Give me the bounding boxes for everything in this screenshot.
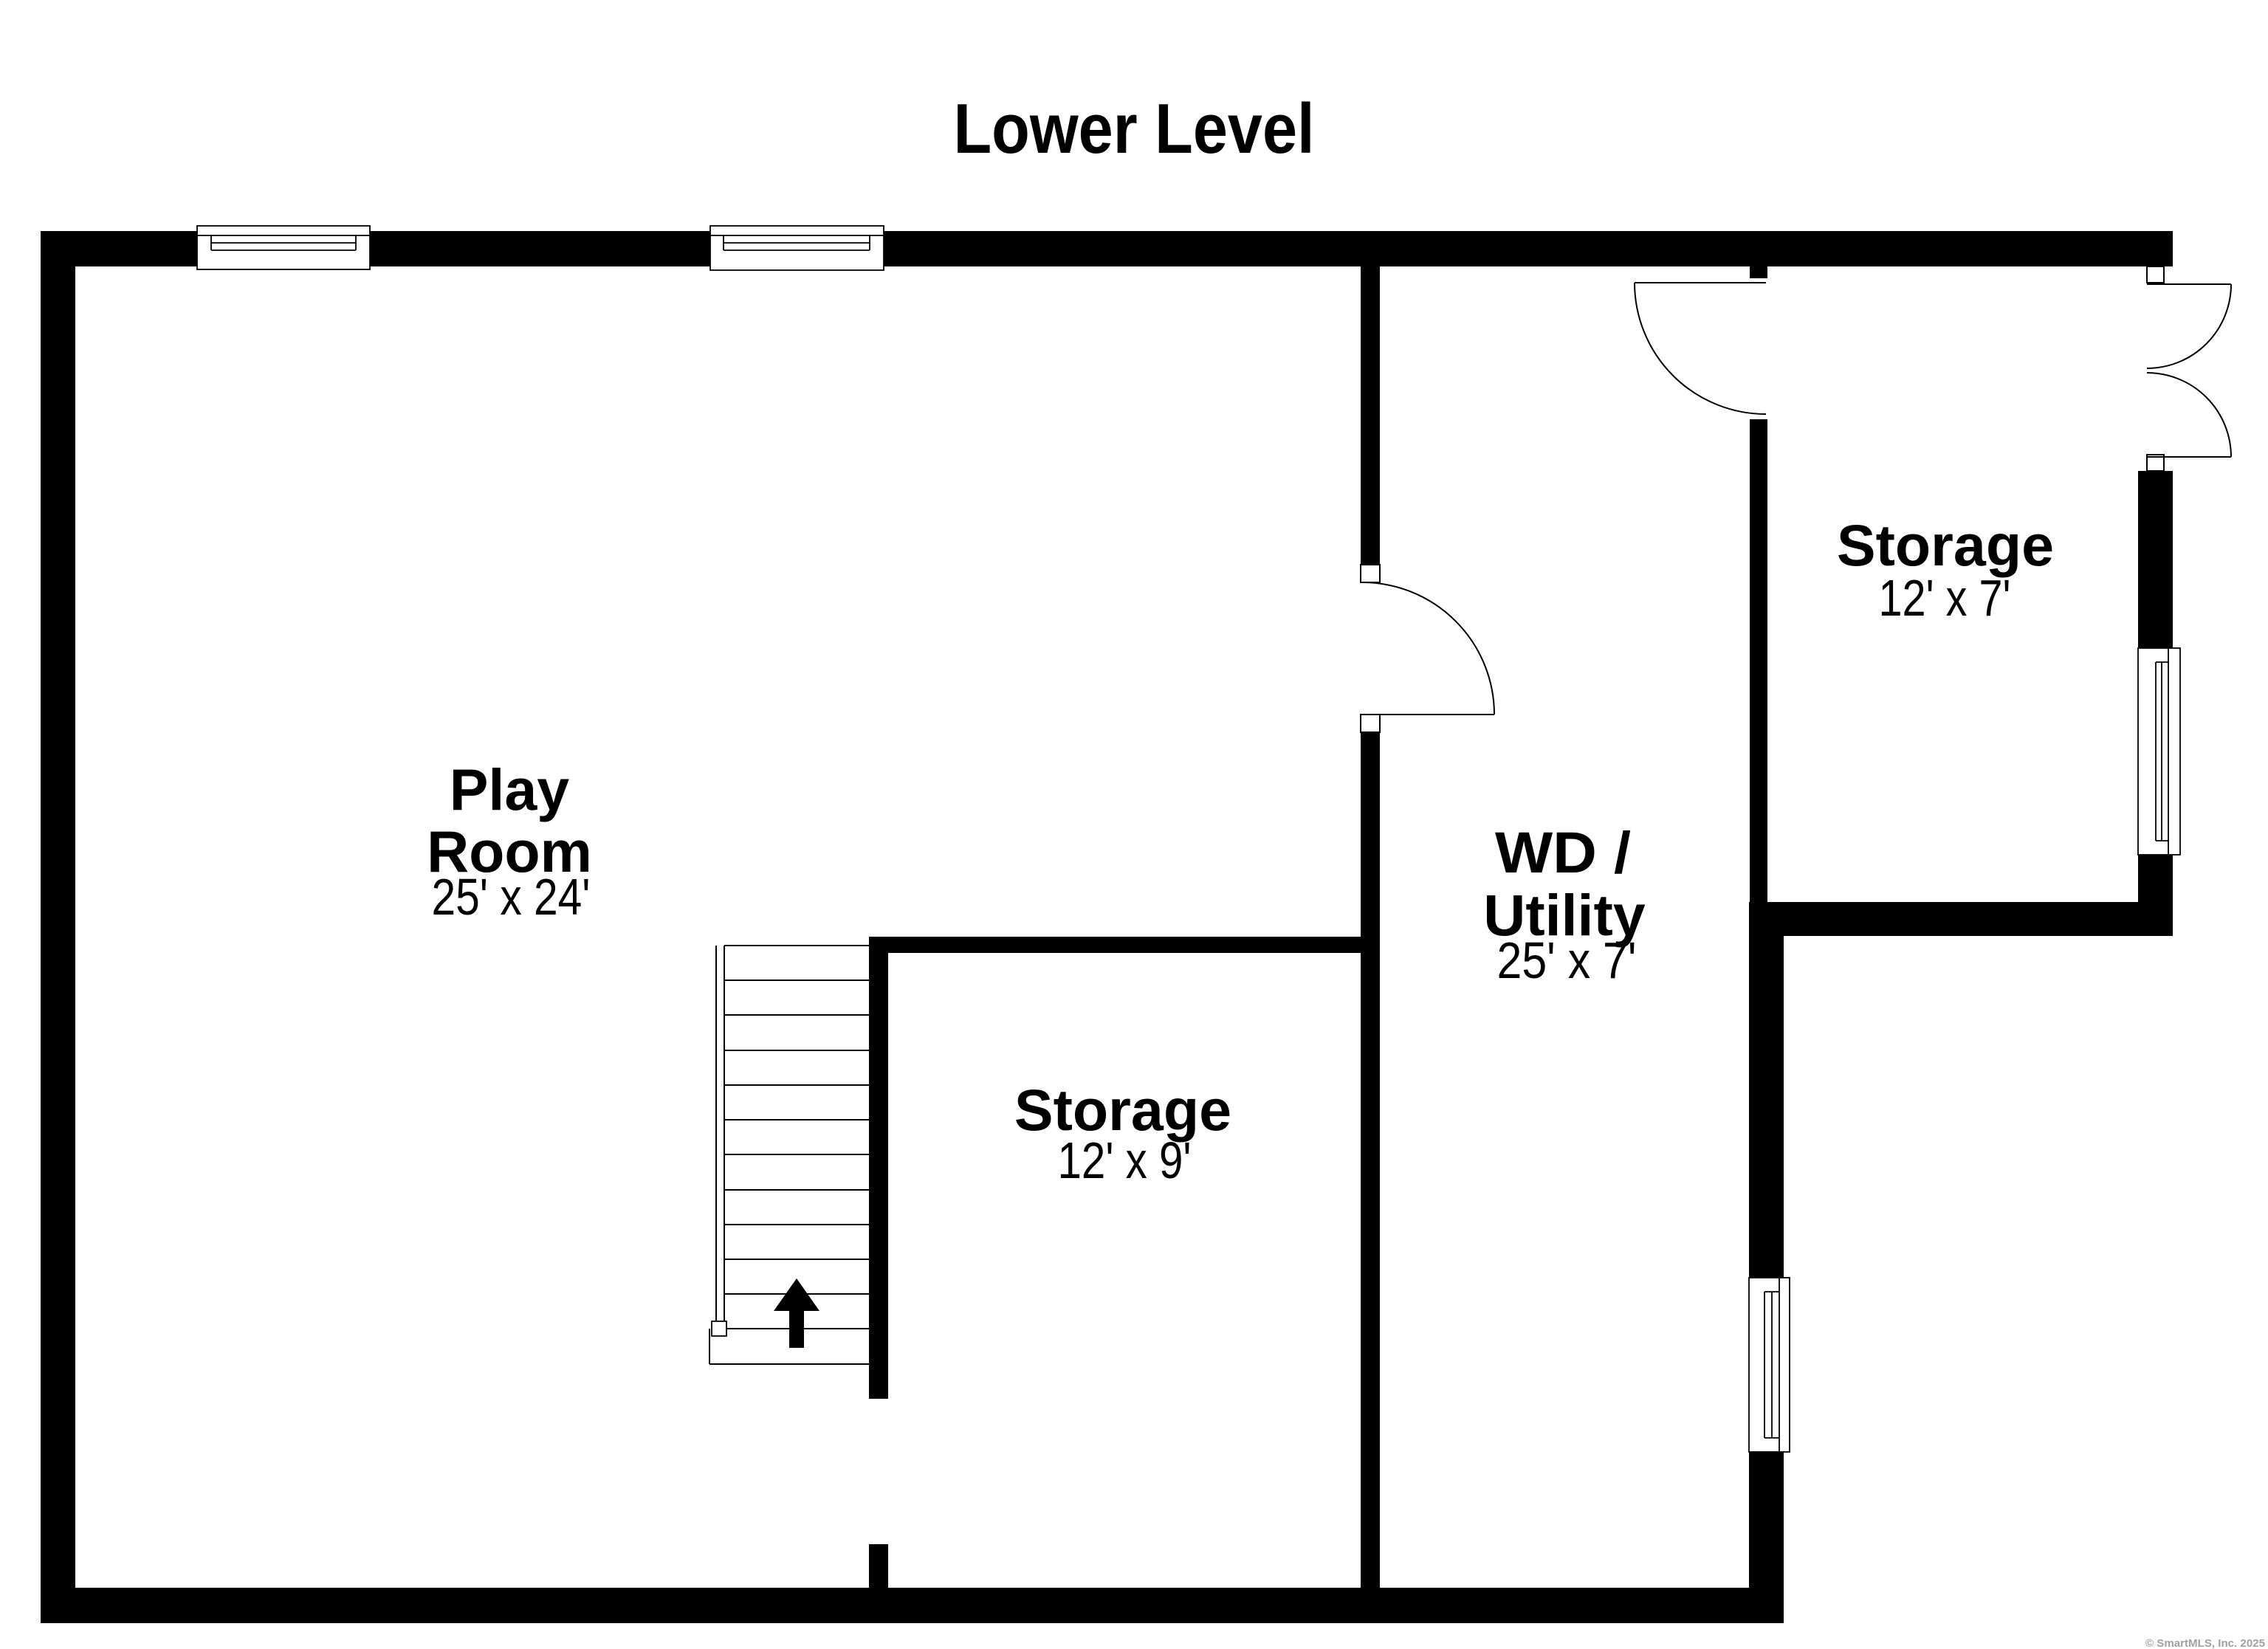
svg-text:12' x 9': 12' x 9': [1058, 1132, 1192, 1189]
svg-text:WD /: WD /: [1495, 819, 1631, 885]
svg-text:Play: Play: [450, 757, 570, 822]
svg-text:Storage: Storage: [1837, 512, 2054, 578]
svg-text:25' x 24': 25' x 24': [432, 868, 591, 926]
svg-text:Lower Level: Lower Level: [954, 89, 1315, 168]
svg-text:© SmartMLS, Inc. 2025: © SmartMLS, Inc. 2025: [2145, 1637, 2265, 1649]
svg-text:12' x 7': 12' x 7': [1879, 569, 2011, 627]
svg-text:25' x 7': 25' x 7': [1497, 932, 1637, 989]
